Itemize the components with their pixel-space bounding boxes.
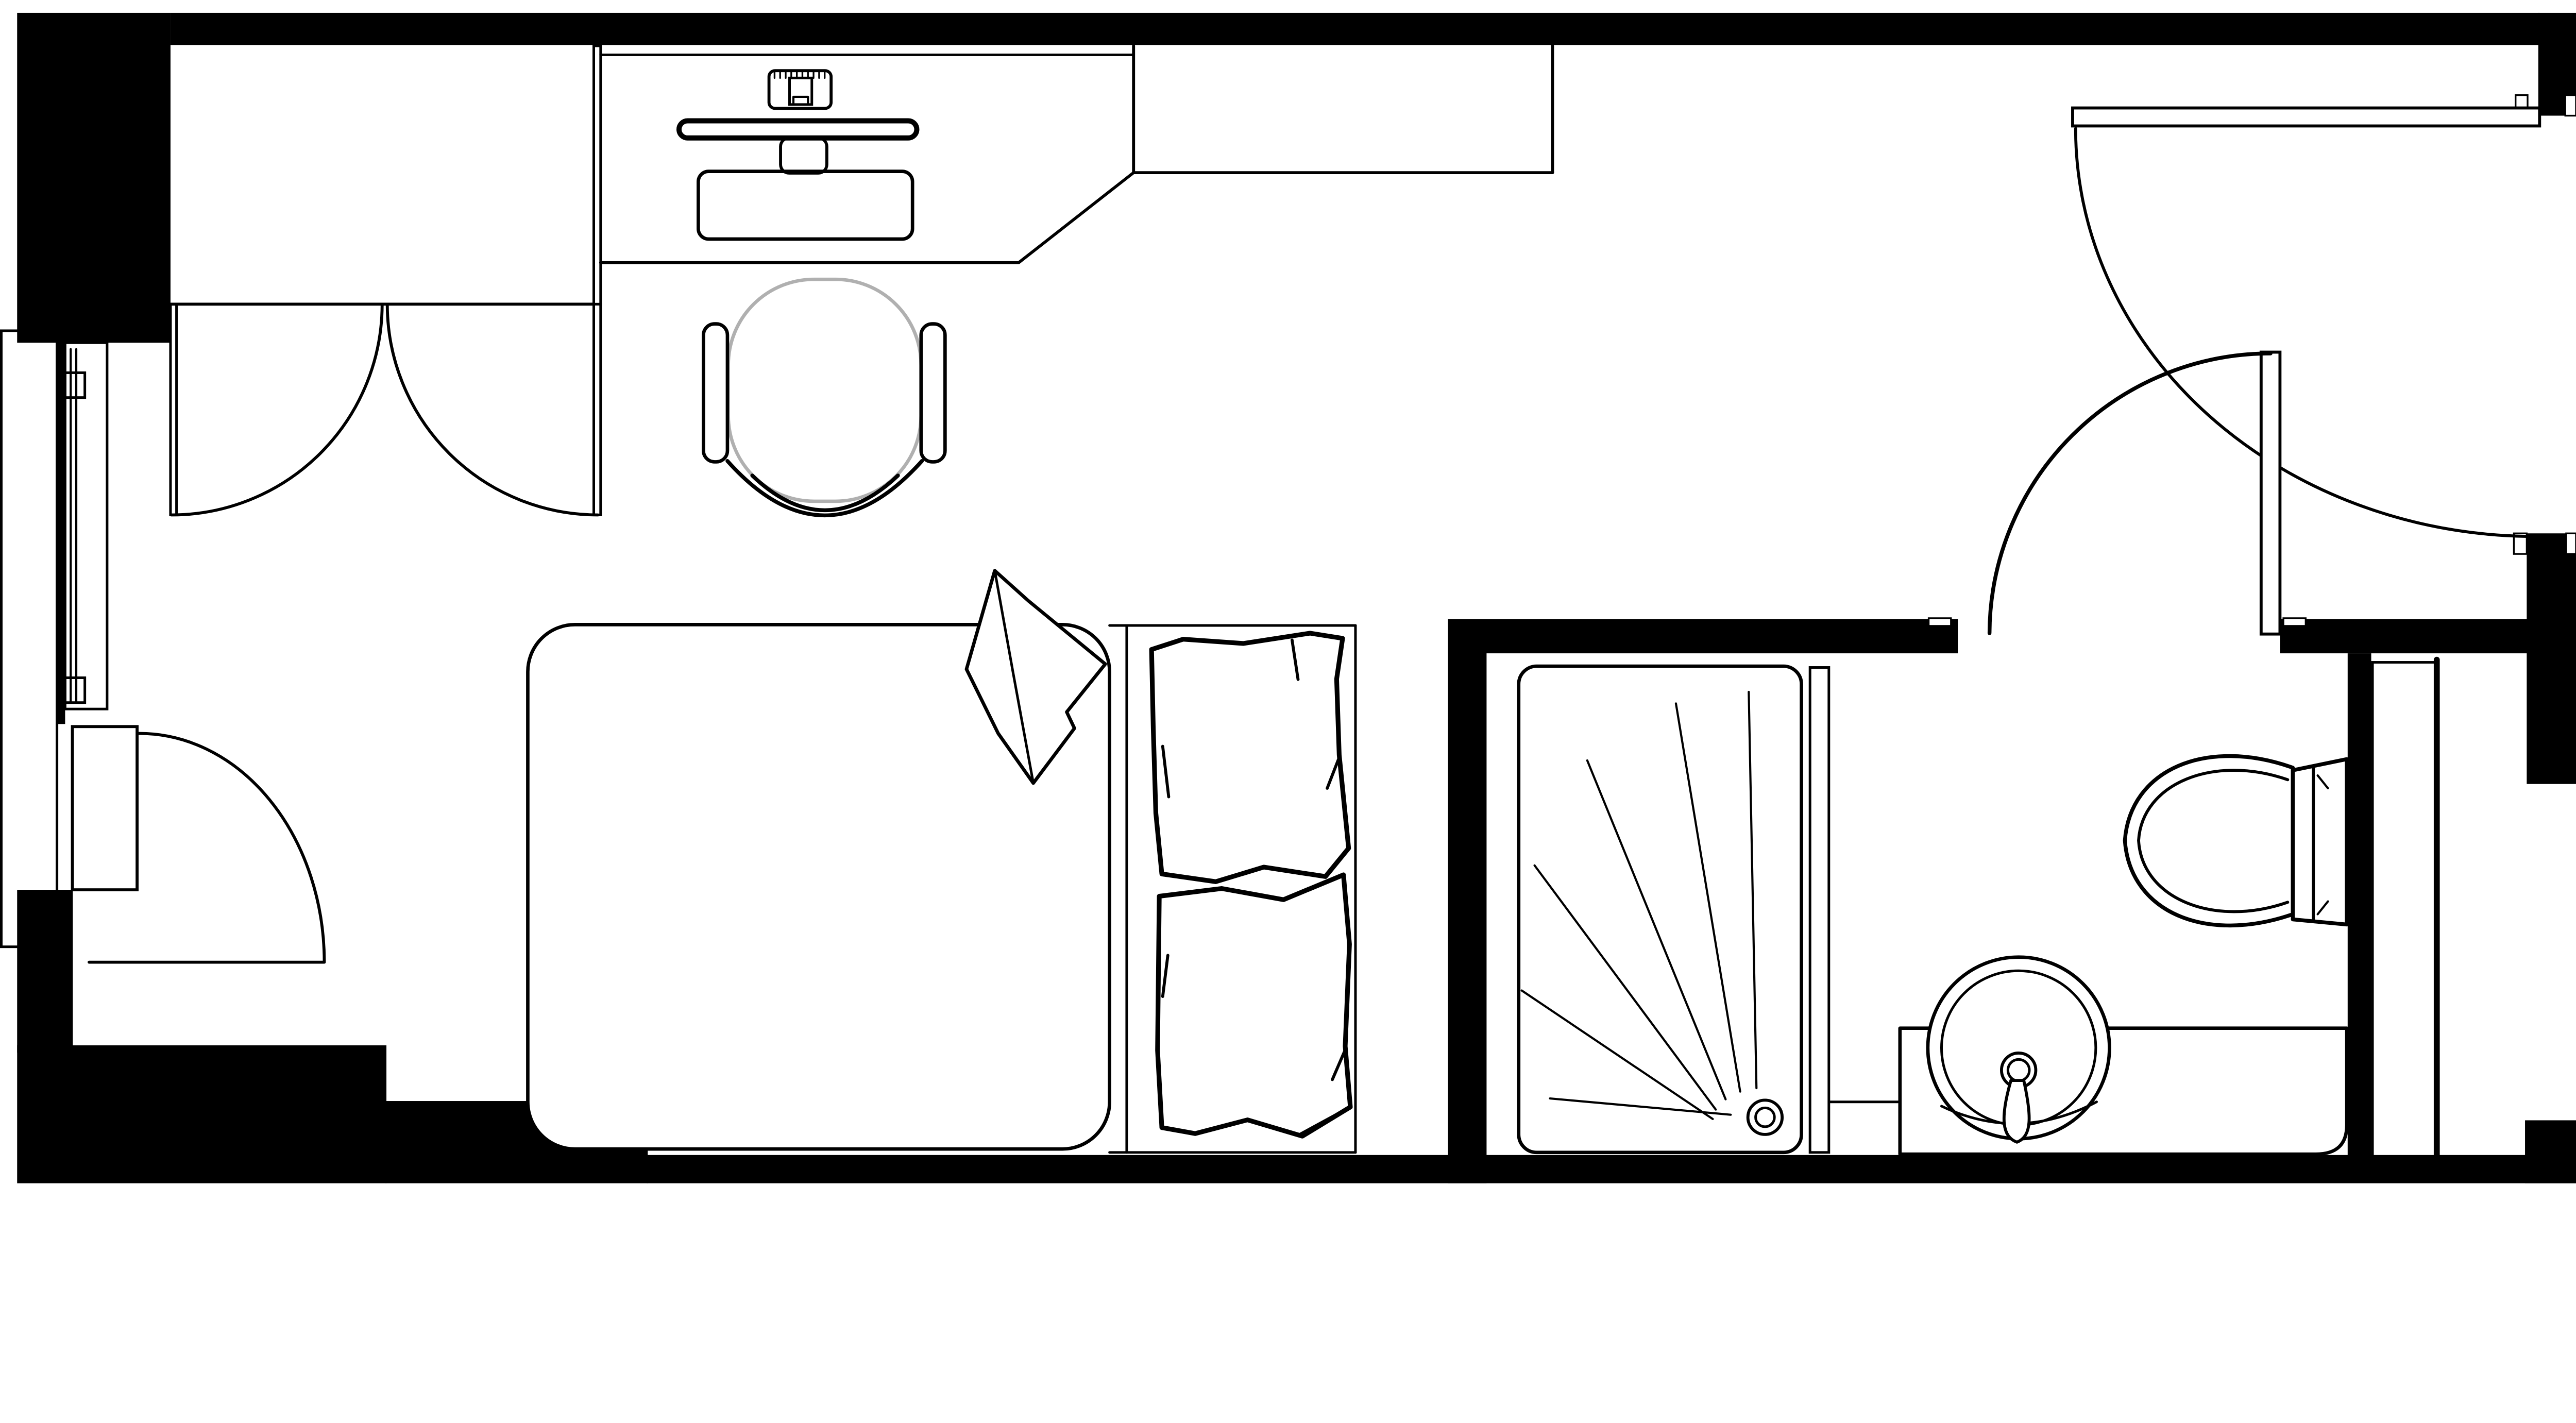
closet-door-left-leaf [171,304,177,515]
window-mullion-bottom [65,677,84,702]
wall-hall-bathroom [2280,619,2538,654]
left-door-arc [139,734,325,961]
wall-left-below-door [17,890,73,1053]
chair-armrest-right [921,324,945,462]
floor-plan-page [0,0,2576,1183]
entry-door-arc [2076,128,2527,536]
shower-drain-outer [1748,1100,1783,1134]
bath-door-leaf [2261,352,2280,634]
pillow-bottom [1158,875,1350,1136]
floor-plan-drawing [0,0,2576,1183]
wall-divider-bedroom [1448,619,1958,654]
notch-bath-jamb-left [1929,618,1951,626]
monitor-bracket [769,71,832,108]
monitor-base [781,138,827,173]
shower-glass-panel [1810,668,1829,1153]
wall-bottom-left-corner [17,1045,386,1183]
service-shaft [2372,663,2437,1162]
shower-tray [1519,666,1802,1153]
chair-back-outer [727,461,922,516]
wall-right-upper [2527,533,2576,784]
keyboard [698,172,912,239]
notch-entry-strike-right [2566,533,2576,554]
chair-back-inner [752,476,898,510]
sink-faucet-handle [2004,1080,2029,1142]
wall-top [171,13,2539,45]
closet-door-left-arc [172,305,382,515]
monitor-screen-bar [679,121,917,138]
window-sill-box [1,331,57,947]
pillow-top [1151,633,1349,882]
notch-bath-hinge [2283,618,2306,626]
closet-door-right-arc [387,305,598,515]
wall-bathroom-left [1448,619,1487,1183]
wall-top-left-block [17,13,171,343]
bath-door-arc [1990,353,2270,633]
desk-corner-diagonal [1019,173,1133,263]
toilet-tank [2293,759,2347,924]
window-mullion-top [65,372,84,397]
entry-door-leaf [2073,108,2539,126]
closet-door-right-leaf [594,304,601,515]
notch-entry-hinge-right [2565,95,2576,116]
wall-bathroom-right [2348,653,2371,1157]
closet-partition [594,46,601,304]
wall-bottom-main [647,1155,2576,1183]
left-door-jamb [73,726,138,890]
chair-armrest-left [703,324,727,462]
chair-seat [728,279,921,501]
toilet-bowl [2125,756,2293,926]
